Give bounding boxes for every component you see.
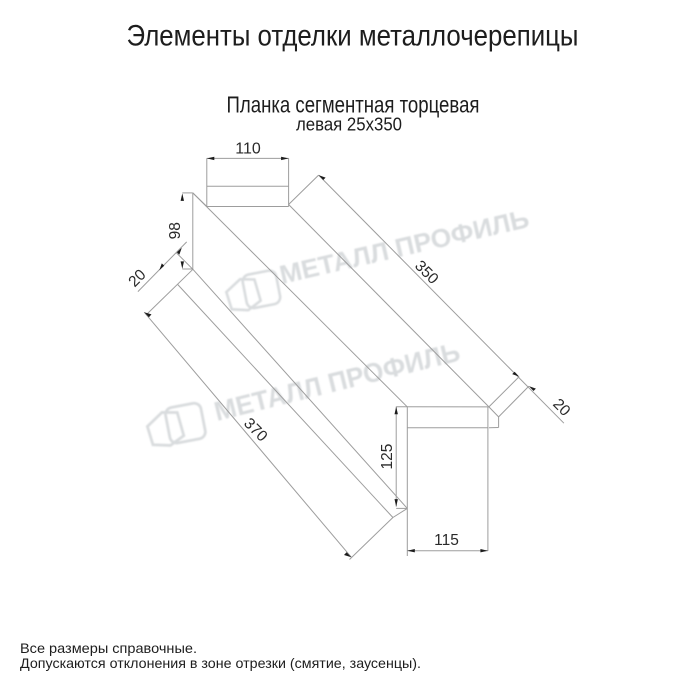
svg-text:98: 98 <box>167 222 184 239</box>
svg-text:Все размеры справочные.: Все размеры справочные. <box>20 640 197 656</box>
svg-text:МЕТАЛЛ ПРОФИЛЬ: МЕТАЛЛ ПРОФИЛЬ <box>277 203 532 290</box>
svg-text:МЕТАЛЛ ПРОФИЛЬ: МЕТАЛЛ ПРОФИЛЬ <box>211 337 463 427</box>
svg-text:20: 20 <box>125 266 149 290</box>
svg-text:115: 115 <box>434 532 459 549</box>
svg-text:110: 110 <box>235 141 261 158</box>
svg-text:20: 20 <box>549 396 573 420</box>
svg-text:левая 25х350: левая 25х350 <box>296 114 402 135</box>
svg-text:125: 125 <box>379 444 396 470</box>
svg-text:Элементы отделки металлочерепи: Элементы отделки металлочерепицы <box>127 20 579 53</box>
svg-text:Допускаются отклонения в зоне: Допускаются отклонения в зоне отрезки (с… <box>20 655 421 671</box>
svg-text:350: 350 <box>411 257 442 288</box>
